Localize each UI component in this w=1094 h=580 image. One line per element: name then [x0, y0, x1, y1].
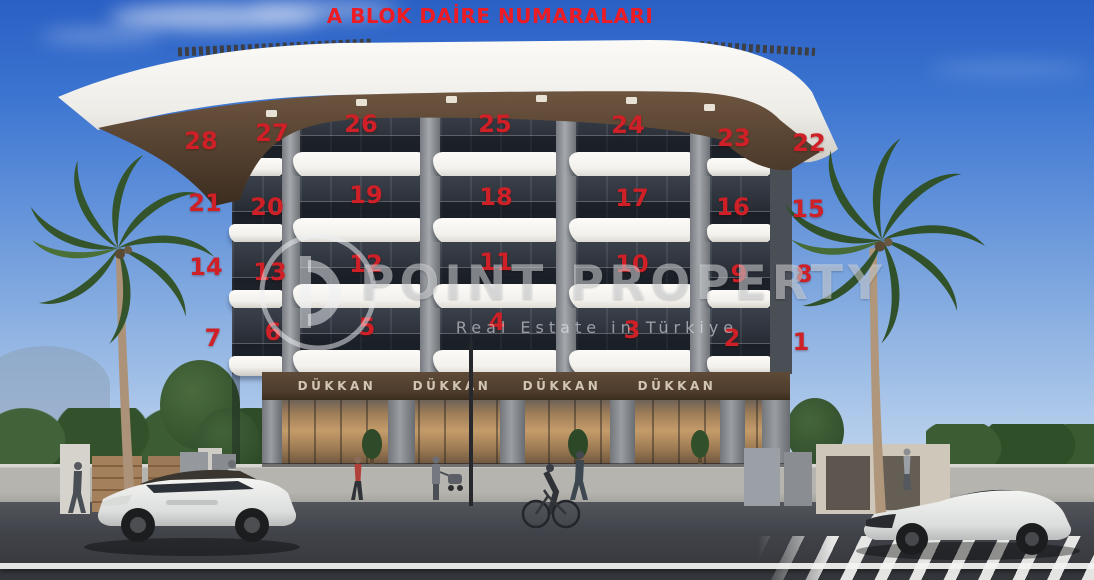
- apartment-number-26: 26: [344, 112, 377, 136]
- apartment-number-13: 13: [253, 260, 286, 284]
- page-title: A BLOK DAİRE NUMARALARI: [327, 4, 654, 28]
- apartment-number-16: 16: [716, 195, 749, 219]
- apartment-number-3: 3: [624, 318, 641, 342]
- apartment-number-17: 17: [615, 186, 648, 210]
- apartment-number-11: 11: [479, 250, 512, 274]
- apartment-number-12: 12: [349, 252, 382, 276]
- apartment-number-4: 4: [489, 310, 506, 334]
- apartment-number-23: 23: [717, 126, 750, 150]
- apartment-number-1: 1: [793, 330, 810, 354]
- apartment-number-14: 14: [189, 255, 222, 279]
- apartment-number-19: 19: [349, 183, 382, 207]
- apartment-number-22: 22: [792, 131, 825, 155]
- apartment-number-21: 21: [188, 191, 221, 215]
- building-render-scene: DÜKKAN DÜKKAN DÜKKAN DÜKKAN: [0, 0, 1094, 580]
- apartment-number-5: 5: [359, 315, 376, 339]
- apartment-number-25: 25: [478, 112, 511, 136]
- apartment-number-15: 15: [791, 197, 824, 221]
- apartment-number-6: 6: [265, 320, 282, 344]
- apartment-numbers-layer: 2827262524232221201918171615141312111098…: [0, 0, 1094, 580]
- apartment-number-27: 27: [255, 121, 288, 145]
- apartment-number-10: 10: [615, 252, 648, 276]
- apartment-number-24: 24: [611, 113, 644, 137]
- apartment-number-2: 2: [724, 326, 741, 350]
- apartment-number-18: 18: [479, 185, 512, 209]
- apartment-number-9: 9: [731, 262, 748, 286]
- apartment-number-20: 20: [250, 195, 283, 219]
- apartment-number-28: 28: [184, 129, 217, 153]
- apartment-number-7: 7: [205, 326, 222, 350]
- apartment-number-8: 8: [796, 262, 813, 286]
